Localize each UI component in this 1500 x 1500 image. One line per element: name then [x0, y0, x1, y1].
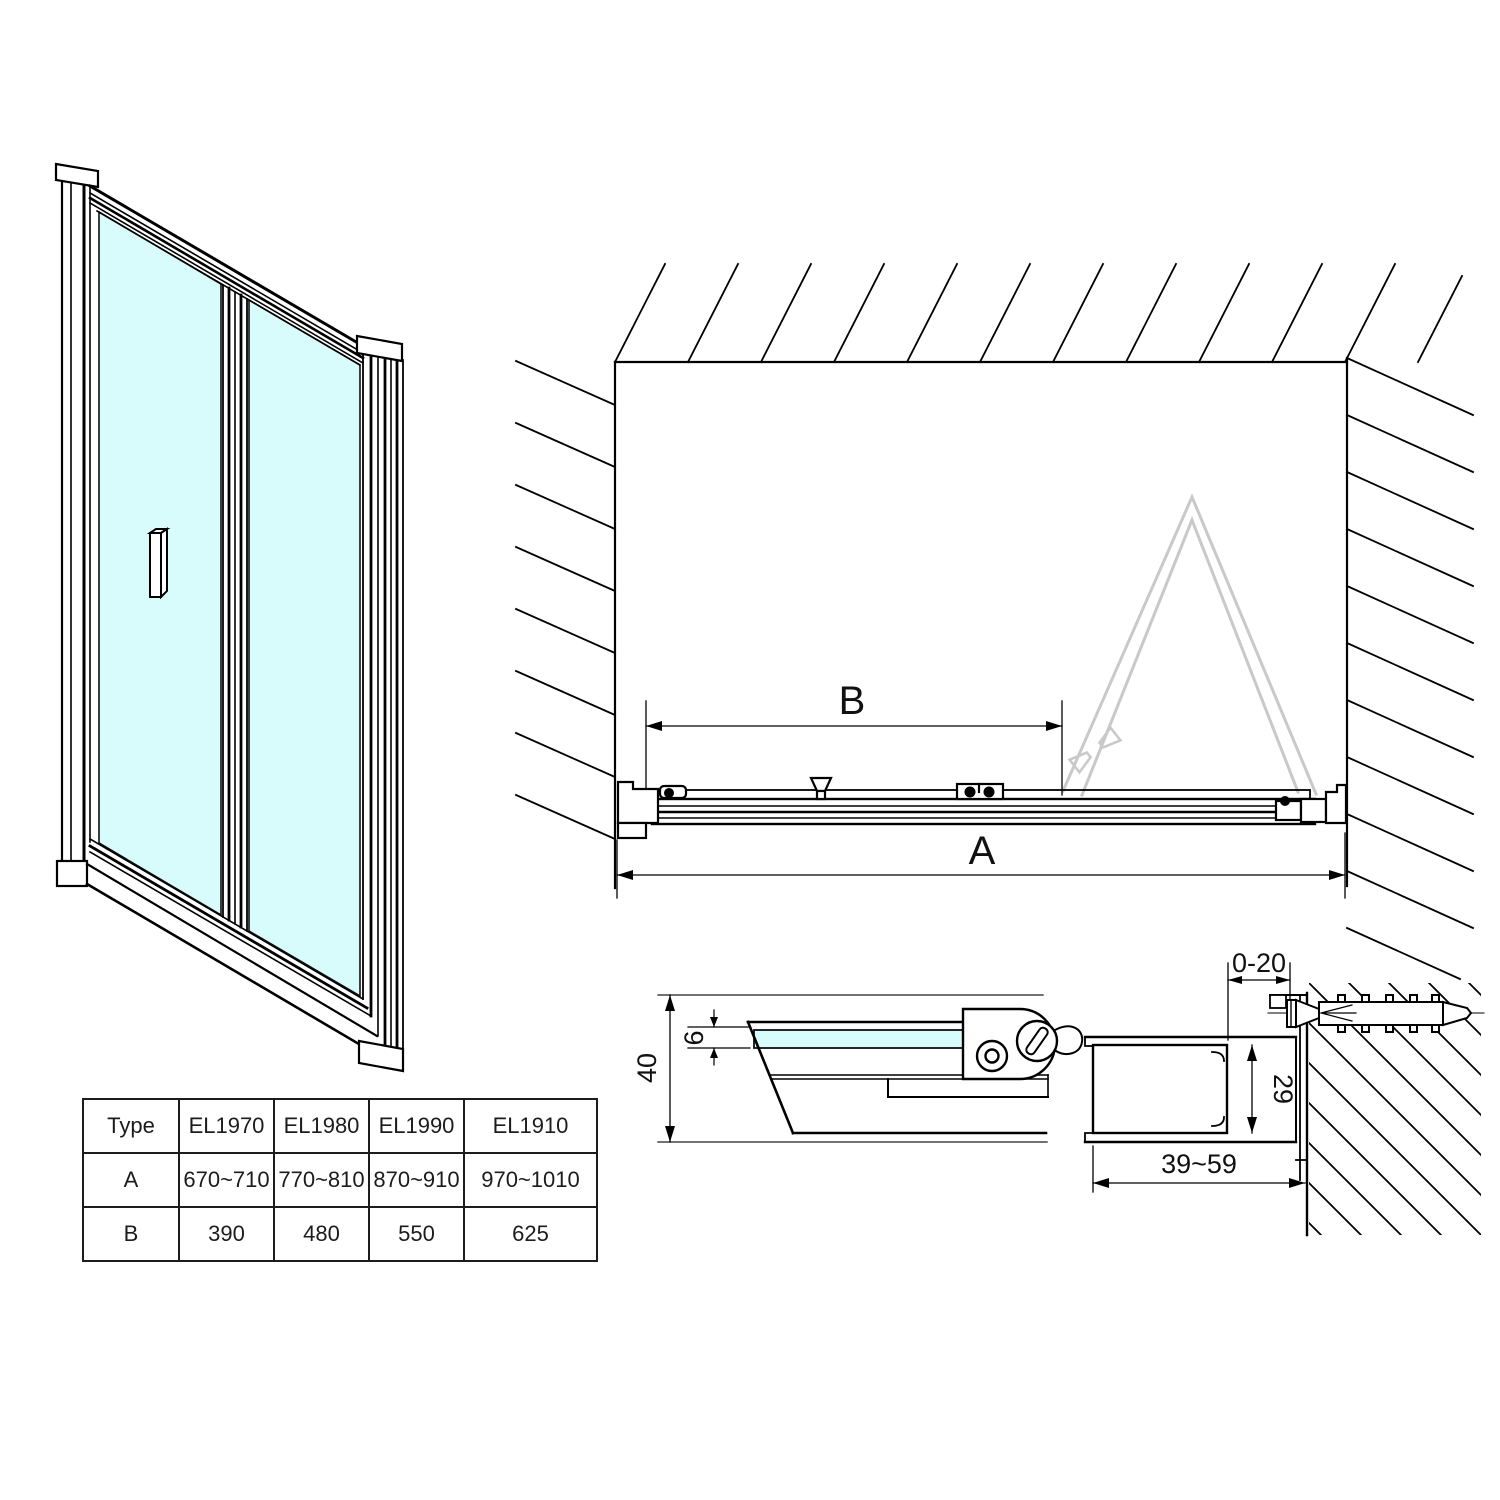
table-cell: 670~710: [179, 1153, 274, 1207]
dimension-29: [1247, 1045, 1257, 1133]
table-cell: Type: [83, 1099, 179, 1153]
dim-40-label: 40: [632, 1053, 662, 1083]
table-cell: 480: [274, 1207, 369, 1261]
dim-29-label: 29: [1268, 1074, 1298, 1104]
center-mullion: [223, 285, 247, 931]
center-guide: [957, 784, 1003, 799]
hinge-block: [963, 1009, 1082, 1079]
table-cell: 870~910: [369, 1153, 464, 1207]
table-cell: 770~810: [274, 1153, 369, 1207]
table-cell: 390: [179, 1207, 274, 1261]
dim-a-label: A: [969, 829, 996, 873]
section-view: 40 6 29 0-20: [632, 948, 1500, 1253]
table-cell: EL1980: [274, 1099, 369, 1153]
left-wall-bracket: [618, 782, 658, 838]
table-cell: B: [83, 1207, 179, 1261]
sliding-block: [1093, 1045, 1227, 1133]
plan-view: B A: [516, 264, 1473, 979]
right-stile: [357, 336, 403, 1071]
table-row-b: B 390 480 550 625: [83, 1207, 597, 1261]
table-row-type: Type EL1970 EL1980 EL1990 EL1910: [83, 1099, 597, 1153]
table-cell: 970~1010: [464, 1153, 597, 1207]
pivot-knob: [811, 778, 831, 799]
dim-b-label: B: [839, 679, 866, 723]
door-handle: [150, 529, 167, 597]
dimension-40: [665, 995, 675, 1142]
table-row-a: A 670~710 770~810 870~910 970~1010: [83, 1153, 597, 1207]
left-stile: [56, 164, 98, 886]
ghost-folded-door: [1063, 497, 1316, 795]
technical-drawing-page: B A: [0, 0, 1500, 1500]
table-cell: 550: [369, 1207, 464, 1261]
left-wall-hatching: [516, 361, 615, 839]
table-cell: 625: [464, 1207, 597, 1261]
glass-section: [754, 1030, 980, 1048]
top-wall-hatching: [615, 264, 1462, 362]
left-roller: [660, 786, 686, 798]
table-cell: A: [83, 1153, 179, 1207]
left-bottom-foot: [57, 861, 87, 886]
dim-39-59-label: 39~59: [1161, 1149, 1237, 1179]
table-cell: EL1990: [369, 1099, 464, 1153]
dim-0-20-label: 0-20: [1232, 948, 1286, 978]
table-cell: EL1910: [464, 1099, 597, 1153]
right-wall-hatching: [1347, 358, 1473, 979]
table-cell: EL1970: [179, 1099, 274, 1153]
wall-profile: [1085, 993, 1307, 1235]
glass-panel-right: [249, 300, 360, 996]
drawing-svg: B A: [0, 0, 1500, 1500]
dim-6-label: 6: [679, 1030, 709, 1045]
spec-table: Type EL1970 EL1980 EL1990 EL1910 A 670~7…: [82, 1098, 598, 1262]
front-view: [56, 164, 403, 1071]
